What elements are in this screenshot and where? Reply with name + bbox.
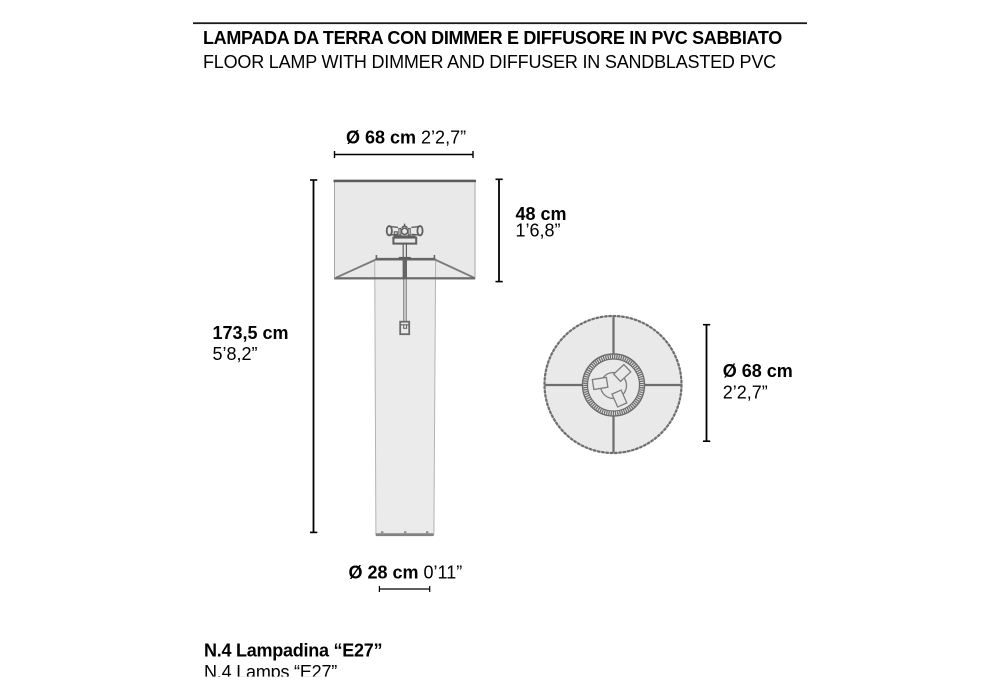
svg-text:Ø 68 cm 2’2,7”: Ø 68 cm 2’2,7” [346,128,466,148]
svg-text:Ø 28 cm 0’11”: Ø 28 cm 0’11” [349,562,463,582]
svg-text:1’6,8”: 1’6,8” [516,221,561,241]
svg-text:FLOOR LAMP WITH DIMMER AND DIF: FLOOR LAMP WITH DIMMER AND DIFFUSER IN S… [203,52,776,72]
svg-text:N.4 Lampadina “E27”: N.4 Lampadina “E27” [204,641,382,661]
svg-text:Ø 68 cm: Ø 68 cm [723,361,793,381]
svg-text:173,5 cm: 173,5 cm [213,323,289,343]
svg-text:LAMPADA DA TERRA CON DIMMER E: LAMPADA DA TERRA CON DIMMER E DIFFUSORE … [203,28,782,48]
svg-text:5’8,2”: 5’8,2” [213,344,258,364]
svg-text:2’2,7”: 2’2,7” [723,383,768,403]
